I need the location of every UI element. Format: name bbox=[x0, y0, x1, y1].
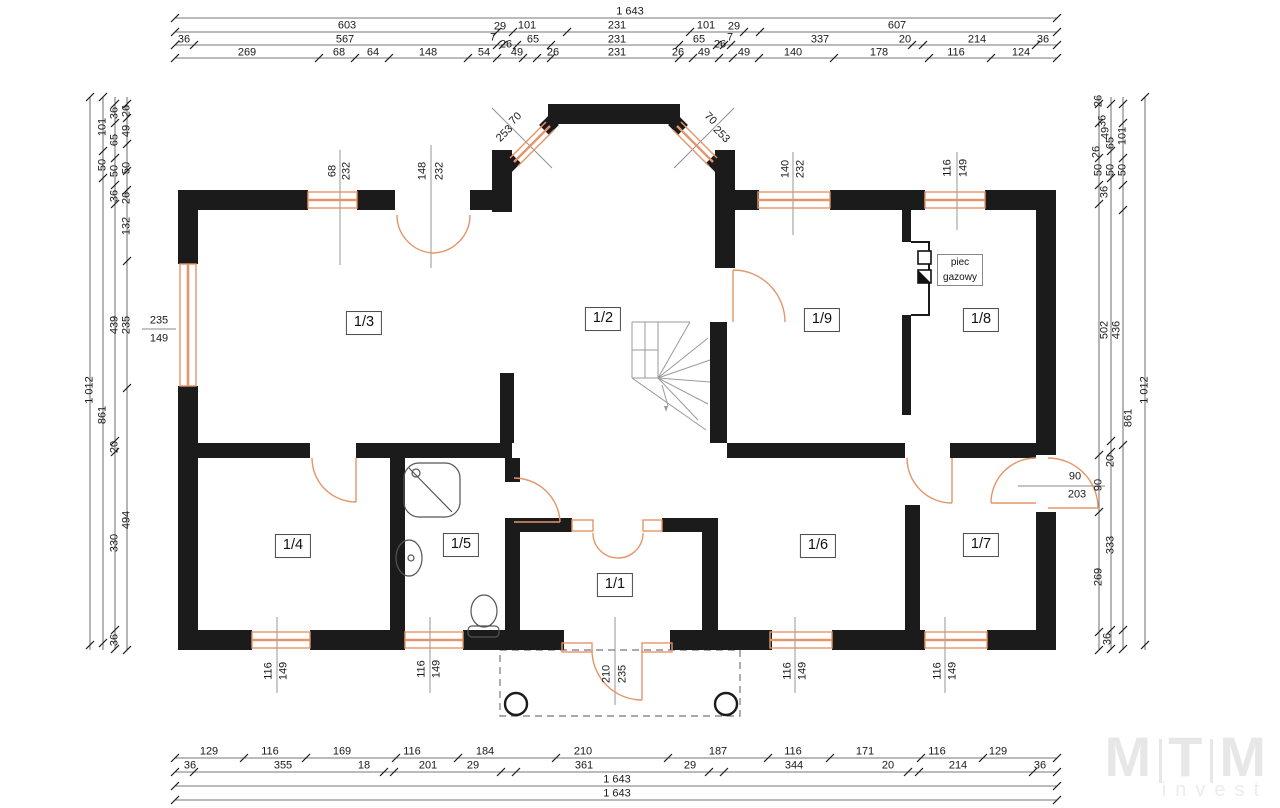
entry-sidelight bbox=[562, 643, 592, 652]
dim-label: 36 bbox=[1103, 633, 1114, 645]
dim-label: 201 bbox=[419, 761, 437, 772]
dim-label: 116 bbox=[947, 48, 965, 59]
door-room-1-7 bbox=[991, 458, 1036, 503]
dim-label: 26 bbox=[672, 48, 684, 59]
dim-label: 231 bbox=[608, 48, 626, 59]
dim-label: 149 bbox=[150, 334, 168, 345]
boiler-label-line2: gazowy bbox=[938, 270, 982, 285]
dim-label: 140 bbox=[784, 48, 802, 59]
room-label-1-6: 1/6 bbox=[800, 534, 836, 558]
dim-label: 361 bbox=[575, 761, 593, 772]
dim-label: 36 bbox=[110, 190, 121, 202]
dim-label: 231 bbox=[608, 21, 626, 32]
floor-plan-drawing bbox=[0, 0, 1280, 808]
dim-label: 436 bbox=[1112, 321, 1123, 339]
dim-label: 54 bbox=[478, 48, 490, 59]
dim-label: 1 012 bbox=[1140, 376, 1151, 404]
door-room-1-4 bbox=[312, 458, 356, 502]
dim-label: 232 bbox=[435, 162, 446, 180]
dim-label: 1 643 bbox=[616, 7, 644, 18]
exterior-side-door bbox=[1048, 458, 1098, 508]
dim-label: 235 bbox=[150, 316, 168, 327]
dim-label: 20 bbox=[1106, 455, 1117, 467]
dim-label: 64 bbox=[367, 48, 379, 59]
dim-label: 26 bbox=[122, 105, 133, 117]
dim-label: 116 bbox=[783, 662, 794, 680]
dim-label: 7 bbox=[490, 33, 496, 44]
dim-label: 235 bbox=[618, 665, 629, 683]
dim-label: 7 bbox=[727, 33, 733, 44]
sidelight-window bbox=[643, 520, 662, 531]
dimension-ticks bbox=[86, 14, 1149, 804]
dim-label: 101 bbox=[697, 21, 715, 32]
dim-label: 203 bbox=[1068, 490, 1086, 501]
company-logo: MTM invest bbox=[1104, 732, 1268, 802]
dim-label: 36 bbox=[178, 35, 190, 46]
dim-label: 20 bbox=[899, 35, 911, 46]
dim-label: 232 bbox=[796, 160, 807, 178]
dim-label: 116 bbox=[403, 747, 421, 758]
dim-label: 101 bbox=[518, 21, 536, 32]
dim-label: 68 bbox=[328, 165, 339, 177]
dim-label: 50 bbox=[1118, 164, 1129, 176]
hall-double-door bbox=[593, 533, 643, 558]
entry-sidelight bbox=[642, 643, 672, 652]
dim-label: 169 bbox=[333, 747, 351, 758]
logo-mtm: MTM bbox=[1104, 732, 1268, 783]
door-room-1-5 bbox=[514, 478, 560, 522]
dim-label: 29 bbox=[467, 761, 479, 772]
dim-label: 101 bbox=[98, 118, 109, 136]
dim-label: 140 bbox=[781, 160, 792, 178]
dim-label: 124 bbox=[1012, 48, 1030, 59]
dim-label: 132 bbox=[122, 217, 133, 235]
room-label-1-8: 1/8 bbox=[963, 308, 999, 332]
dim-label: 116 bbox=[928, 747, 946, 758]
room-label-1-2: 1/2 bbox=[585, 307, 621, 331]
walls bbox=[178, 104, 1056, 650]
floor-plan-page: 1 64360329101231101296073656772665231652… bbox=[0, 0, 1280, 808]
dim-label: 861 bbox=[98, 406, 109, 424]
dim-label: 344 bbox=[785, 761, 803, 772]
dim-label: 36 bbox=[1037, 35, 1049, 46]
dim-label: 50 bbox=[122, 162, 133, 174]
dim-label: 90 bbox=[1069, 472, 1081, 483]
dim-label: 116 bbox=[943, 159, 954, 177]
dim-label: 18 bbox=[358, 761, 370, 772]
dim-label: 149 bbox=[279, 662, 290, 680]
dim-label: 1 012 bbox=[85, 376, 96, 404]
dim-label: 187 bbox=[709, 747, 727, 758]
dim-label: 36 bbox=[1034, 761, 1046, 772]
room-label-1-4: 1/4 bbox=[275, 534, 311, 558]
room-label-1-1: 1/1 bbox=[597, 573, 633, 597]
dim-label: 26 bbox=[714, 40, 726, 51]
dim-label: 116 bbox=[784, 747, 802, 758]
french-door bbox=[397, 215, 470, 253]
dim-label: 148 bbox=[418, 162, 429, 180]
dim-label: 50 bbox=[1106, 164, 1117, 176]
room-label-1-7: 1/7 bbox=[963, 533, 999, 557]
dim-label: 330 bbox=[110, 534, 121, 552]
dim-label: 439 bbox=[110, 316, 121, 334]
dim-label: 184 bbox=[476, 747, 494, 758]
dim-label: 50 bbox=[110, 165, 121, 177]
dim-label: 50 bbox=[1094, 164, 1105, 176]
dim-label: 607 bbox=[888, 21, 906, 32]
toilet bbox=[471, 595, 497, 627]
dim-label: 235 bbox=[122, 316, 133, 334]
dim-label: 232 bbox=[342, 162, 353, 180]
dim-label: 116 bbox=[417, 660, 428, 678]
room-label-1-3: 1/3 bbox=[346, 311, 382, 335]
dim-label: 20 bbox=[882, 761, 894, 772]
dim-label: 1 643 bbox=[603, 789, 631, 800]
dim-label: 49 bbox=[122, 125, 133, 137]
dim-label: 231 bbox=[608, 35, 626, 46]
door-room-1-6 bbox=[907, 458, 952, 503]
dim-label: 148 bbox=[419, 48, 437, 59]
dim-label: 36 bbox=[1098, 115, 1109, 127]
dim-label: 65 bbox=[693, 35, 705, 46]
dim-label: 20 bbox=[110, 441, 121, 453]
room-label-1-5: 1/5 bbox=[443, 533, 479, 557]
dim-label: 49 bbox=[698, 48, 710, 59]
dim-label: 1 643 bbox=[603, 775, 631, 786]
dim-label: 36 bbox=[110, 107, 121, 119]
dim-label: 116 bbox=[261, 747, 279, 758]
dim-label: 68 bbox=[333, 48, 345, 59]
dim-label: 171 bbox=[856, 747, 874, 758]
boiler-label-line1: piec bbox=[938, 255, 982, 270]
dim-label: 101 bbox=[1118, 127, 1129, 145]
dim-label: 603 bbox=[338, 21, 356, 32]
flue-symbol bbox=[918, 251, 931, 264]
dim-label: 26 bbox=[1094, 95, 1105, 107]
stair-direction-arrow bbox=[664, 406, 668, 412]
dim-label: 149 bbox=[959, 159, 970, 177]
dim-label: 178 bbox=[870, 48, 888, 59]
dim-label: 29 bbox=[684, 761, 696, 772]
sidelight-window bbox=[572, 520, 593, 531]
dim-label: 214 bbox=[949, 761, 967, 772]
dim-label: 49 bbox=[511, 48, 523, 59]
dim-label: 129 bbox=[989, 747, 1007, 758]
dim-label: 49 bbox=[738, 48, 750, 59]
dim-label: 65 bbox=[1106, 137, 1117, 149]
dim-label: 861 bbox=[1124, 409, 1135, 427]
dim-label: 333 bbox=[1106, 536, 1117, 554]
dim-label: 26 bbox=[122, 192, 133, 204]
boiler-label: piec gazowy bbox=[937, 254, 983, 286]
dim-label: 50 bbox=[98, 159, 109, 171]
dim-label: 36 bbox=[1100, 186, 1111, 198]
dim-label: 65 bbox=[527, 35, 539, 46]
dim-label: 494 bbox=[122, 511, 133, 529]
stairs bbox=[632, 322, 710, 430]
dim-label: 149 bbox=[798, 662, 809, 680]
dim-label: 214 bbox=[968, 35, 986, 46]
dim-label: 149 bbox=[432, 660, 443, 678]
dim-label: 149 bbox=[948, 662, 959, 680]
dim-label: 567 bbox=[336, 35, 354, 46]
dim-label: 269 bbox=[238, 48, 256, 59]
room-label-1-9: 1/9 bbox=[804, 308, 840, 332]
dim-label: 502 bbox=[1100, 321, 1111, 339]
dim-label: 36 bbox=[110, 634, 121, 646]
dim-label: 65 bbox=[110, 134, 121, 146]
dim-label: 210 bbox=[602, 665, 613, 683]
dim-label: 26 bbox=[547, 48, 559, 59]
dim-label: 210 bbox=[574, 747, 592, 758]
dim-label: 116 bbox=[933, 662, 944, 680]
dim-label: 116 bbox=[264, 662, 275, 680]
dim-label: 36 bbox=[184, 761, 196, 772]
dim-label: 26 bbox=[1092, 146, 1103, 158]
dim-label: 90 bbox=[1094, 479, 1105, 491]
dim-label: 355 bbox=[274, 761, 292, 772]
dim-label: 337 bbox=[811, 35, 829, 46]
porch-column bbox=[715, 693, 737, 715]
dim-label: 269 bbox=[1094, 568, 1105, 586]
porch-column bbox=[505, 693, 527, 715]
dim-label: 129 bbox=[200, 747, 218, 758]
door-room-1-9 bbox=[733, 270, 785, 322]
